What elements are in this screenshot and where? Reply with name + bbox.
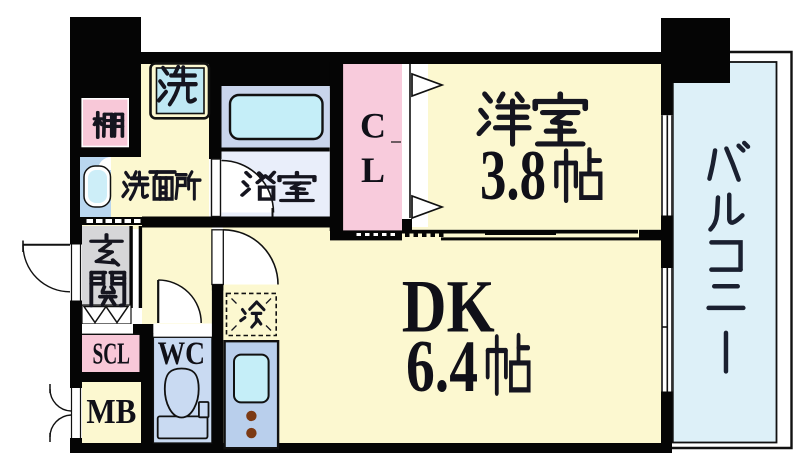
svg-text:6.4: 6.4: [406, 326, 478, 408]
svg-text:WC: WC: [158, 336, 206, 372]
svg-text:MB: MB: [86, 392, 136, 431]
svg-text:SCL: SCL: [93, 335, 131, 370]
svg-text:3.8: 3.8: [480, 137, 546, 215]
svg-text:C: C: [360, 106, 386, 146]
svg-text:L: L: [361, 150, 385, 190]
